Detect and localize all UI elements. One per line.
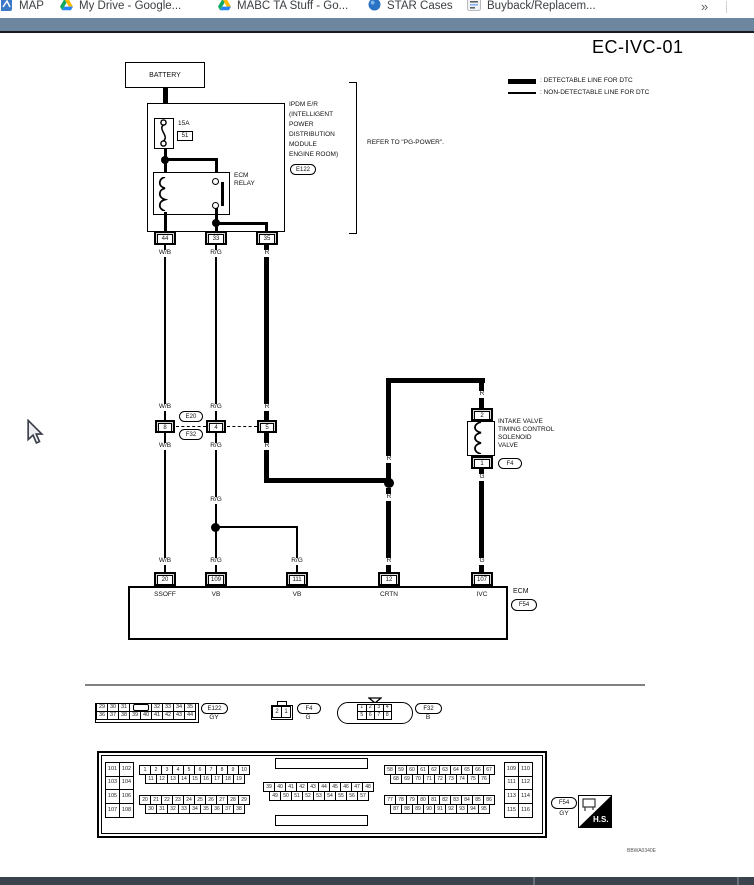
ecm-pin-name: VB xyxy=(212,592,221,599)
relay-coil-icon xyxy=(156,177,174,211)
wire-label: R xyxy=(264,404,271,411)
pin-cell: 108 xyxy=(119,803,134,818)
solenoid-name-line: SOLENOID xyxy=(498,435,532,442)
pin-cell: 111 xyxy=(504,776,519,791)
wire-r xyxy=(386,381,391,481)
inline-dashed-link xyxy=(227,426,257,427)
ecm-pin-name: SSOFF xyxy=(154,592,176,599)
wire-label: R/G xyxy=(209,497,223,504)
pin-cell: 115 xyxy=(504,803,519,818)
inline-pin-5: 5 xyxy=(257,420,277,433)
pin-cell: 109 xyxy=(504,762,519,777)
ecm-box xyxy=(128,586,508,640)
f54-color: GY xyxy=(559,811,568,818)
drive-icon xyxy=(60,0,73,16)
wire-rg-branch xyxy=(296,526,298,573)
f54-row-87-95: 878889909192939495 xyxy=(391,805,490,814)
wire-label: W/B xyxy=(158,250,172,257)
f4-pins: 21 xyxy=(273,707,291,718)
f54-row-11-19: 111213141516171819 xyxy=(146,775,245,784)
mouse-cursor-icon xyxy=(26,419,44,445)
wire xyxy=(164,212,167,231)
wire-label: R xyxy=(386,494,393,501)
legend-label: : NON-DETECTABLE LINE FOR DTC xyxy=(540,90,649,97)
f4-color: G xyxy=(305,715,310,722)
solenoid-pin-1: 1 xyxy=(471,456,493,469)
pin-cell: 105 xyxy=(105,789,120,804)
wire xyxy=(165,158,217,161)
wire-label: R/G xyxy=(290,558,304,565)
bookmark-label: Buyback/Replacem... xyxy=(487,1,596,13)
pin-cell: 103 xyxy=(105,776,120,791)
relay-contact xyxy=(212,178,219,185)
bookmark-my-drive[interactable]: My Drive - Google... xyxy=(60,0,181,14)
bookmark-buyback[interactable]: Buyback/Replacem... xyxy=(467,0,596,14)
map-favicon-icon xyxy=(1,0,13,16)
ipdm-name-line: IPDM E/R xyxy=(289,102,318,109)
ecm-terminal-12: 12 xyxy=(378,572,400,586)
ecm-pin-name: CRTN xyxy=(380,592,398,599)
bookmarks-bar: MAP My Drive - Google... MABC TA Stuff -… xyxy=(0,0,754,18)
bookmark-star-cases[interactable]: STAR Cases xyxy=(368,0,453,14)
pin-cell: 1 xyxy=(281,706,291,718)
wire-r xyxy=(386,378,485,383)
bookmark-label: STAR Cases xyxy=(387,1,453,13)
bookmark-label: MABC TA Stuff - Go... xyxy=(237,1,348,13)
bookmark-label: MAP xyxy=(19,1,44,13)
inline-pin-4: 4 xyxy=(206,420,226,433)
wire-label: R/G xyxy=(209,558,223,565)
legend-thin-line-swatch xyxy=(508,92,536,94)
wire-label: R xyxy=(264,443,271,450)
bookmark-map[interactable]: MAP xyxy=(1,0,44,14)
legend-detectable: : DETECTABLE LINE FOR DTC xyxy=(508,78,633,85)
relay-armature xyxy=(221,182,224,206)
toolbar-edge-line xyxy=(0,31,754,33)
fuse-number-box: 51 xyxy=(177,131,193,141)
inline-connector-e20-badge: E20 xyxy=(179,411,203,422)
wire-label: W/B xyxy=(158,558,172,565)
bookmark-mabc-ta-stuff[interactable]: MABC TA Stuff - Go... xyxy=(218,0,348,14)
ipdm-name-line: POWER xyxy=(289,122,314,129)
wire-rg-branch xyxy=(216,526,297,528)
ipdm-connector-badge: E122 xyxy=(290,164,316,175)
wire-label: G xyxy=(478,558,485,565)
fuse-amp-label: 15A xyxy=(178,121,190,128)
ecm-label: ECM xyxy=(513,588,529,595)
bookmarks-separator xyxy=(726,1,727,13)
pin-cell: 95 xyxy=(478,804,490,814)
pin-cell: 104 xyxy=(119,776,134,791)
pin-cell: 113 xyxy=(504,789,519,804)
solenoid-name-line: VALVE xyxy=(498,443,518,450)
globe-icon xyxy=(368,0,381,16)
solenoid-name-line: TIMING CONTROL xyxy=(498,427,554,434)
ecm-pin-name: VB xyxy=(293,592,302,599)
e122-color: GY xyxy=(209,715,218,722)
inline-connector-f32-badge: F32 xyxy=(179,429,203,440)
f32-row2: 5678 xyxy=(358,712,392,720)
refer-bracket xyxy=(349,82,357,234)
wire-label: W/B xyxy=(158,404,172,411)
wire-wb xyxy=(164,245,166,421)
f54-badge: F54 xyxy=(551,797,577,809)
screen: MAP My Drive - Google... MABC TA Stuff -… xyxy=(0,0,754,885)
f54-row-49-57: 495051525354555657 xyxy=(270,792,369,801)
bookmark-label: My Drive - Google... xyxy=(79,1,181,13)
pin-cell: 107 xyxy=(105,803,120,818)
ipdm-name-line: MODULE xyxy=(289,142,317,149)
inline-dashed-link xyxy=(176,426,206,427)
wire-r xyxy=(264,245,269,421)
wire-wb xyxy=(164,433,166,573)
taskbar-edge xyxy=(0,877,754,885)
ecm-terminal-109: 109 xyxy=(205,572,227,586)
ecm-terminal-107: 107 xyxy=(471,572,493,586)
pin-cell: 38 xyxy=(233,804,245,814)
terminal-44: 44 xyxy=(154,231,176,245)
f54-left-block: 101102103104105106107108 xyxy=(106,763,136,818)
solenoid-coil-icon xyxy=(468,422,493,454)
fuse-box xyxy=(154,118,174,149)
legend-thick-line-swatch xyxy=(508,79,536,84)
legend-non-detectable: : NON-DETECTABLE LINE FOR DTC xyxy=(508,90,649,97)
pin-cell: 76 xyxy=(478,774,490,784)
wire xyxy=(265,222,268,231)
f4-badge: F4 xyxy=(297,703,321,714)
solenoid-coil-box xyxy=(467,421,495,456)
battery-box: BATTERY xyxy=(125,62,205,88)
fuse-symbol-icon xyxy=(155,119,172,147)
pin-cell: 114 xyxy=(518,789,533,804)
bookmarks-overflow-chevron[interactable]: » xyxy=(701,0,708,13)
taskbar-tick xyxy=(533,877,535,885)
wire-label: G xyxy=(478,474,485,481)
refer-note: REFER TO "PG-POWER". xyxy=(367,140,444,147)
relay-label-2: RELAY xyxy=(234,181,255,188)
terminal-33: 33 xyxy=(205,231,227,245)
pin-cell: 19 xyxy=(233,774,245,784)
ipdm-name-line: DISTRIBUTION xyxy=(289,132,335,139)
wire-label: R xyxy=(386,456,393,463)
hs-mark-label: H.S. xyxy=(593,816,609,824)
ipdm-name-line: ENGINE ROOM) xyxy=(289,152,338,159)
pin-cell: 57 xyxy=(357,791,369,801)
wire-r xyxy=(264,433,269,483)
wire-label: R xyxy=(264,250,271,257)
solenoid-connector-badge: F4 xyxy=(498,458,522,469)
wire-rg xyxy=(215,245,217,421)
figure-code: BBWA0340E xyxy=(627,849,656,854)
pin-cell: 8 xyxy=(383,711,393,720)
wire-label: R/G xyxy=(209,404,223,411)
inline-pin-8: 8 xyxy=(155,420,175,433)
pin-cell: 102 xyxy=(119,762,134,777)
f54-row-68-76: 686970717273747576 xyxy=(391,775,490,784)
taskbar-tick xyxy=(737,877,739,885)
f54-bottom-slot xyxy=(275,815,368,826)
diagram-title: EC-IVC-01 xyxy=(592,37,684,58)
ecm-terminal-111: 111 xyxy=(286,572,308,586)
wire-label: W/B xyxy=(158,443,172,450)
pin-cell: 44 xyxy=(184,711,196,720)
f54-right-block: 109110111112113114115116 xyxy=(505,763,535,818)
f32-badge: F32 xyxy=(415,703,442,714)
terminal-35: 35 xyxy=(256,231,278,245)
pin-cell: 101 xyxy=(105,762,120,777)
wire-label: R xyxy=(386,558,393,565)
pin-cell: 112 xyxy=(518,776,533,791)
drive-icon xyxy=(218,0,231,16)
ecm-terminal-20: 20 xyxy=(154,572,176,586)
viewer-toolbar-strip xyxy=(0,18,754,31)
section-divider xyxy=(85,684,645,686)
wire-r xyxy=(266,478,389,483)
pin-cell: 116 xyxy=(518,803,533,818)
solenoid-name-line: INTAKE VALVE xyxy=(498,419,543,426)
ecm-connector-badge: F54 xyxy=(511,599,537,611)
pin-cell: 110 xyxy=(518,762,533,777)
ecm-pin-name: IVC xyxy=(477,592,488,599)
doc-icon xyxy=(467,0,481,16)
junction-dot xyxy=(384,478,394,488)
wire-label: R/G xyxy=(209,250,223,257)
e122-row2: 363738394041424344 xyxy=(97,712,196,720)
e122-badge: E122 xyxy=(201,703,228,714)
relay-label-1: ECM xyxy=(234,173,248,180)
f54-top-slot xyxy=(275,758,368,769)
wire-label: R/G xyxy=(209,443,223,450)
solenoid-pin-2: 2 xyxy=(471,408,493,421)
wire-label: R xyxy=(479,391,486,398)
wire xyxy=(216,222,267,225)
f32-color: B xyxy=(426,715,430,722)
legend-label: : DETECTABLE LINE FOR DTC xyxy=(540,78,633,85)
pin-cell: 106 xyxy=(119,789,134,804)
ipdm-name-line: (INTELLIGENT xyxy=(289,112,333,119)
f54-row-30-38: 303132333435363738 xyxy=(146,805,245,814)
